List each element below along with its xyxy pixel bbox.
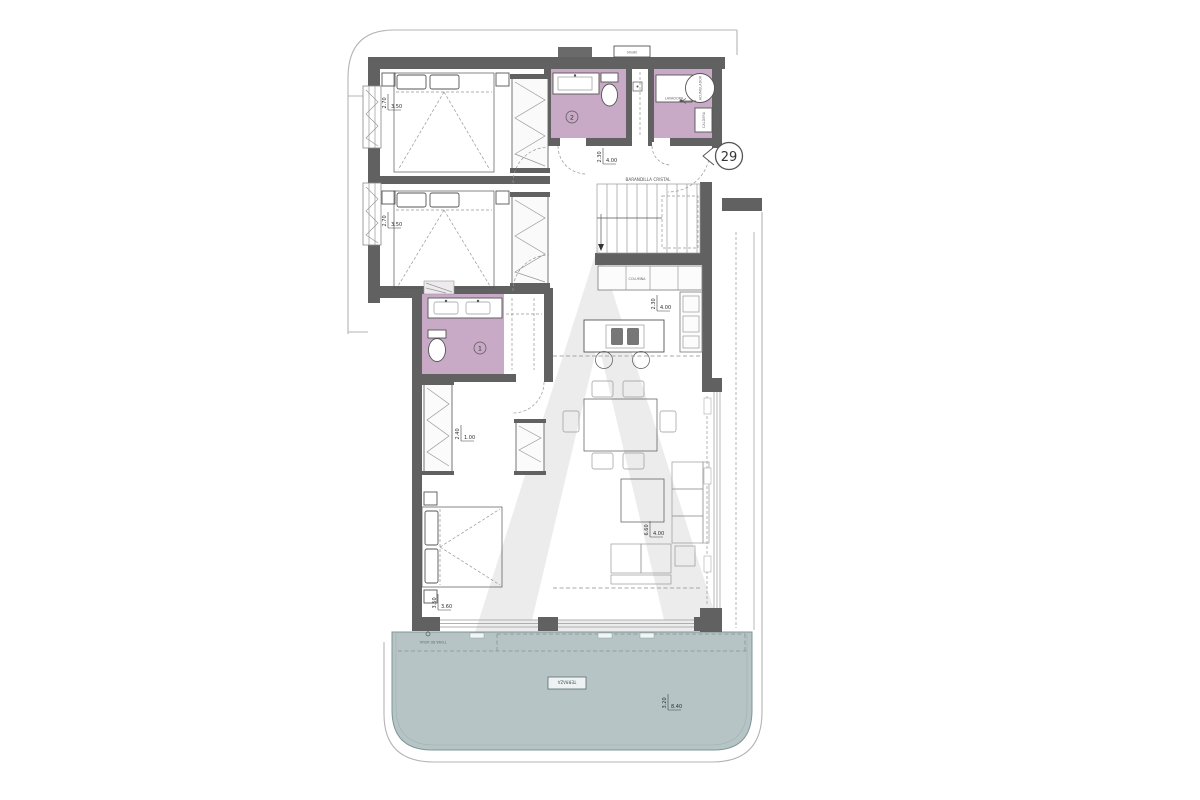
svg-text:4.00: 4.00 (606, 158, 617, 164)
window-bedroom1 (363, 86, 381, 148)
kitchen-island (584, 320, 664, 352)
tap (574, 74, 576, 76)
dim-bedroom1: 2.70 3.50 (382, 94, 402, 110)
dim-bedroom2: 2.70 3.50 (382, 212, 402, 228)
unit-number: 29 (721, 150, 738, 165)
tap (477, 300, 479, 302)
water-heater: ACUMULADOR (686, 74, 715, 103)
window-bedroom2 (363, 183, 381, 245)
svg-text:4.00: 4.00 (653, 531, 664, 537)
nightstand (382, 73, 395, 86)
wardrobe-master-left (422, 381, 454, 475)
svg-text:2.30: 2.30 (597, 151, 603, 162)
nightstand (496, 73, 509, 86)
dim-kitchen: 2.30 4.00 (651, 295, 671, 311)
svg-text:2.70: 2.70 (382, 97, 388, 108)
window-spec-tag (704, 556, 711, 572)
party-wall-stub (722, 198, 762, 211)
pillow (397, 193, 426, 207)
nightstand (496, 191, 509, 204)
svg-text:8.40: 8.40 (671, 704, 682, 710)
svg-text:1: 1 (478, 345, 482, 353)
terrace: TOMA DE AGUA TERRAZA 3.20 8.40 (392, 626, 752, 750)
wardrobe-bedroom1 (510, 74, 550, 173)
svg-text:3.60: 3.60 (441, 604, 452, 610)
bedroom1: 2.70 3.50 (382, 73, 550, 173)
svg-text:3.50: 3.50 (391, 222, 402, 228)
boiler-label: CALDERA (702, 111, 706, 128)
svg-text:2.30: 2.30 (651, 298, 657, 309)
toilet (428, 330, 446, 362)
door-spec-tag (598, 633, 612, 638)
pillow (430, 193, 459, 207)
room-fills (422, 69, 712, 374)
door-spec-tag (470, 633, 484, 638)
stairs: BARANDILLA CRISTAL (597, 177, 700, 253)
wardrobe-master-right (514, 419, 546, 475)
pillow (425, 549, 438, 583)
floor-plan-canvas: TOMA DE AGUA TERRAZA 3.20 8.40 (0, 0, 1200, 800)
pillow (425, 511, 438, 545)
dim-hall: 2.30 4.00 (597, 148, 617, 164)
dressing-floor (504, 294, 544, 374)
svg-text:4.00: 4.00 (660, 305, 671, 311)
svg-text:3.50: 3.50 (432, 597, 438, 608)
window-spec-tag (704, 398, 711, 414)
water-intake-label: TOMA DE AGUA (419, 640, 447, 644)
column-label: COLUMNA (628, 277, 646, 281)
dim-master-entry: 2.40 1.00 (455, 425, 475, 441)
stairs-railing-label: BARANDILLA CRISTAL (625, 177, 671, 182)
nightstand (424, 492, 437, 505)
svg-text:3.50: 3.50 (391, 104, 402, 110)
boiler: CALDERA (695, 108, 712, 132)
pillow (397, 75, 426, 89)
wall-niche (558, 47, 592, 57)
door-spec-tag (640, 633, 654, 638)
terrace-label: TERRAZA (557, 680, 577, 685)
wardrobe-bedroom2 (510, 192, 550, 288)
nightstand (382, 191, 395, 204)
hall-closet (633, 72, 642, 136)
bar-stool (633, 352, 650, 369)
svg-text:1.00: 1.00 (464, 435, 475, 441)
shaft-label: 90x80 (627, 51, 638, 55)
pillow (430, 75, 459, 89)
double-vanity (428, 298, 502, 318)
tap (445, 300, 447, 302)
floor-plan-drawing: TOMA DE AGUA TERRAZA 3.20 8.40 (0, 0, 1200, 800)
heater-label: ACUMULADOR (699, 75, 703, 100)
svg-text:2.70: 2.70 (382, 215, 388, 226)
svg-text:3.20: 3.20 (662, 697, 668, 708)
right-window-wall (704, 392, 720, 608)
toilet (601, 73, 618, 106)
svg-text:2: 2 (570, 114, 574, 122)
bedroom2: 2.70 3.50 (382, 191, 550, 288)
terrace-label-box: TERRAZA (548, 677, 586, 689)
shaft: 90x80 (558, 46, 650, 57)
svg-text:2.40: 2.40 (455, 428, 461, 439)
svg-text:6.60: 6.60 (644, 524, 650, 535)
window-spec-tag (704, 468, 711, 484)
terrace-floor (392, 632, 752, 750)
